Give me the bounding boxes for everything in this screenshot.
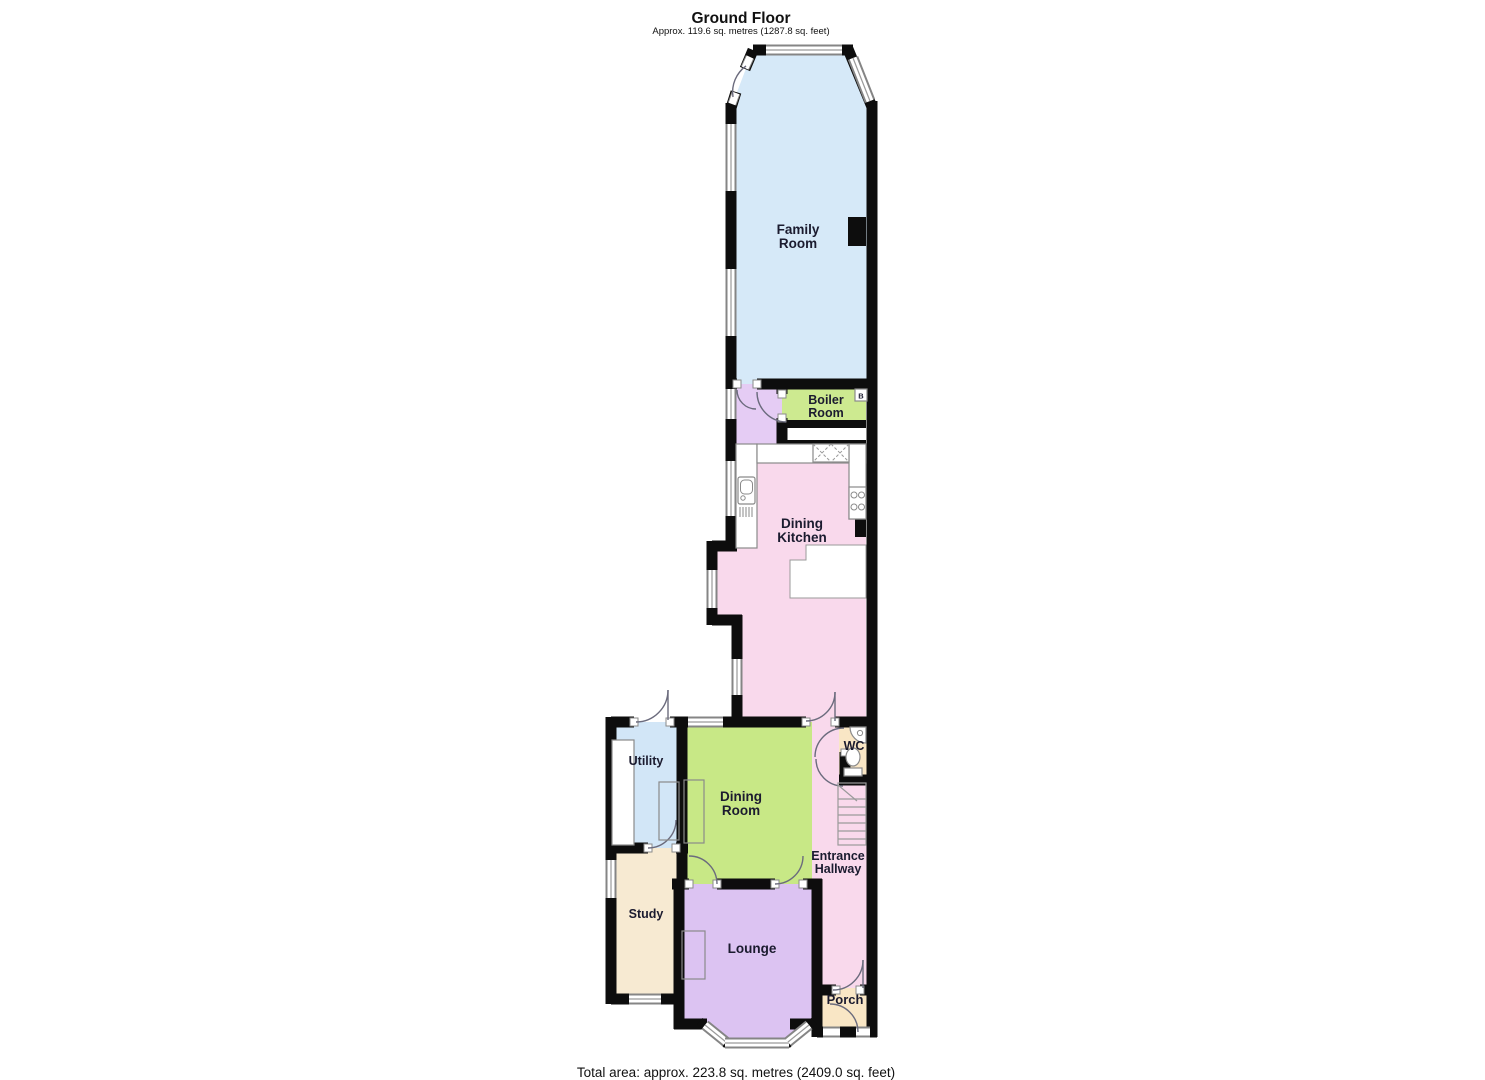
utility-label: Utility <box>629 754 664 768</box>
total-area-note: Total area: approx. 223.8 sq. metres (24… <box>577 1065 895 1080</box>
floorplan-page: Ground Floor Approx. 119.6 sq. metres (1… <box>0 0 1485 1080</box>
kitchen-hatch-unit <box>813 444 849 462</box>
boiler-fixtures: B <box>855 389 867 401</box>
wc-label: WC <box>844 739 865 753</box>
boiler-room-label: Boiler <box>808 393 844 407</box>
dining-kitchen-label: Dining <box>781 516 823 531</box>
plan-subtitle: Approx. 119.6 sq. metres (1287.8 sq. fee… <box>652 26 829 37</box>
plan-title: Ground Floor <box>691 10 790 27</box>
entrance-hallway-label: Entrance <box>811 849 865 863</box>
porch-label: Porch <box>827 992 864 1007</box>
study-label: Study <box>629 907 664 921</box>
utility-exterior-door-arc <box>636 690 668 722</box>
svg-text:Room: Room <box>808 406 843 420</box>
svg-text:Room: Room <box>779 236 817 251</box>
chimney-breast <box>848 217 866 246</box>
family-room-label: Family <box>777 222 820 237</box>
dining-room-label: Dining <box>720 789 762 804</box>
kitchen-hob <box>849 487 866 519</box>
svg-text:Kitchen: Kitchen <box>777 530 827 545</box>
study-area <box>611 848 678 999</box>
lounge-area <box>679 884 817 1042</box>
svg-text:Room: Room <box>722 803 760 818</box>
svg-text:Hallway: Hallway <box>815 862 862 876</box>
lounge-label: Lounge <box>728 941 777 956</box>
wc-cistern <box>844 768 862 776</box>
boiler-unit-label: B <box>858 392 864 401</box>
